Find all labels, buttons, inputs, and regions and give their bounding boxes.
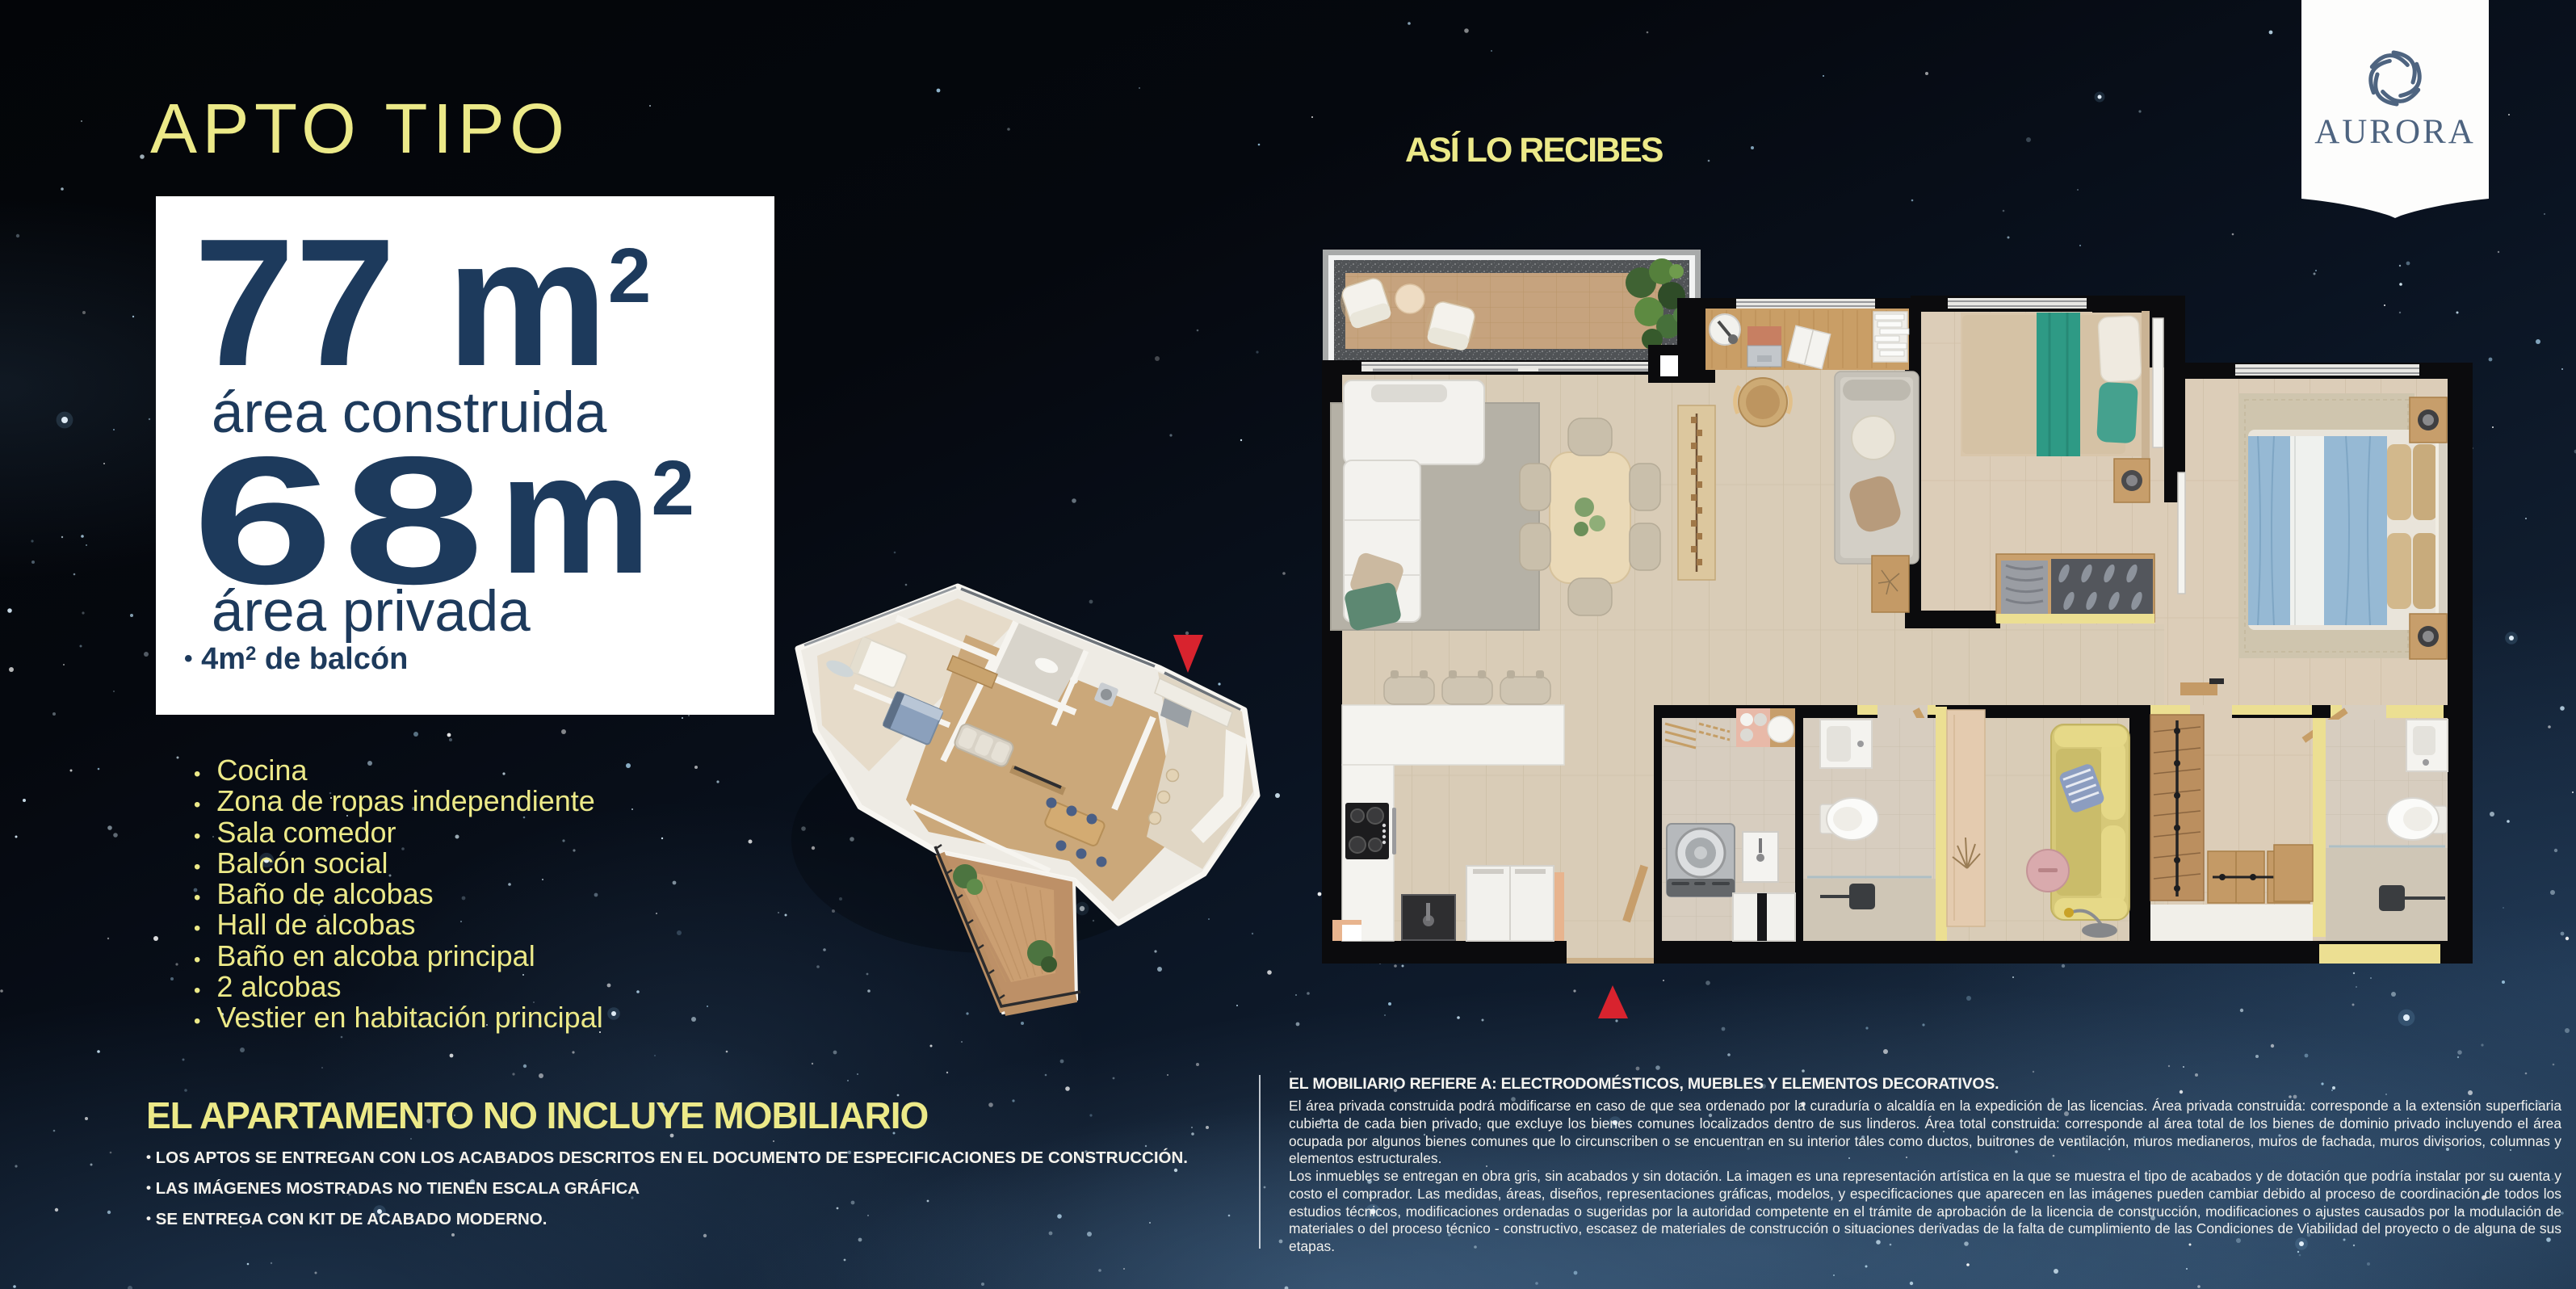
svg-text:AURORA: AURORA (2314, 113, 2476, 151)
